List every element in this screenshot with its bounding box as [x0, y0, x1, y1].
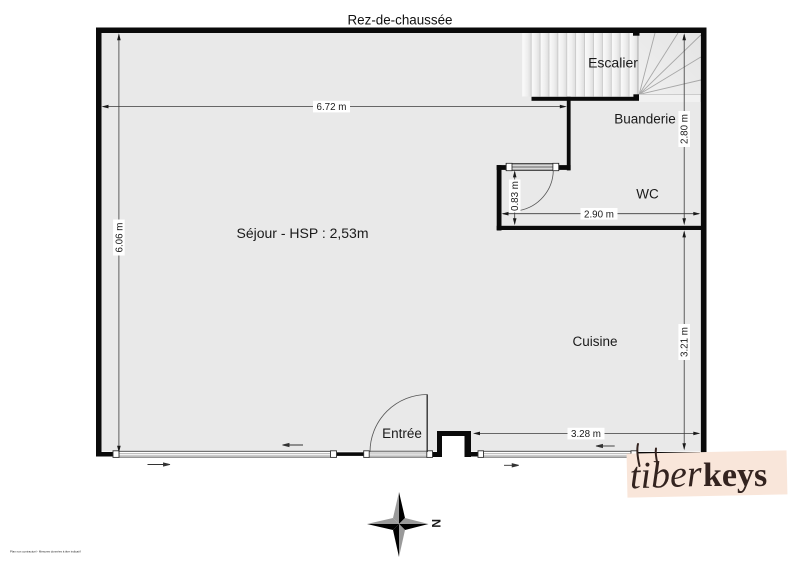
svg-text:Séjour - HSP : 2,53m: Séjour - HSP : 2,53m — [236, 225, 368, 241]
svg-text:WC: WC — [636, 187, 659, 202]
svg-text:3.28 m: 3.28 m — [571, 429, 601, 440]
svg-text:6.06 m: 6.06 m — [114, 223, 125, 253]
svg-text:Buanderie: Buanderie — [614, 112, 676, 127]
svg-text:2.80 m: 2.80 m — [680, 114, 691, 144]
svg-text:2.90 m: 2.90 m — [584, 209, 614, 220]
svg-text:Plan non contractuel - Mesures: Plan non contractuel - Mesures données à… — [10, 550, 81, 554]
svg-text:tiber: tiber — [629, 453, 702, 497]
svg-text:Cuisine: Cuisine — [572, 334, 617, 349]
svg-text:keys: keys — [703, 457, 767, 494]
svg-text:N: N — [429, 519, 443, 528]
svg-text:Entrée: Entrée — [382, 426, 422, 441]
svg-text:3.21 m: 3.21 m — [680, 327, 691, 357]
svg-text:Escalier: Escalier — [588, 55, 638, 71]
svg-text:6.72 m: 6.72 m — [317, 102, 347, 113]
svg-text:Rez-de-chaussée: Rez-de-chaussée — [348, 13, 453, 28]
svg-text:0.83 m: 0.83 m — [510, 181, 521, 211]
